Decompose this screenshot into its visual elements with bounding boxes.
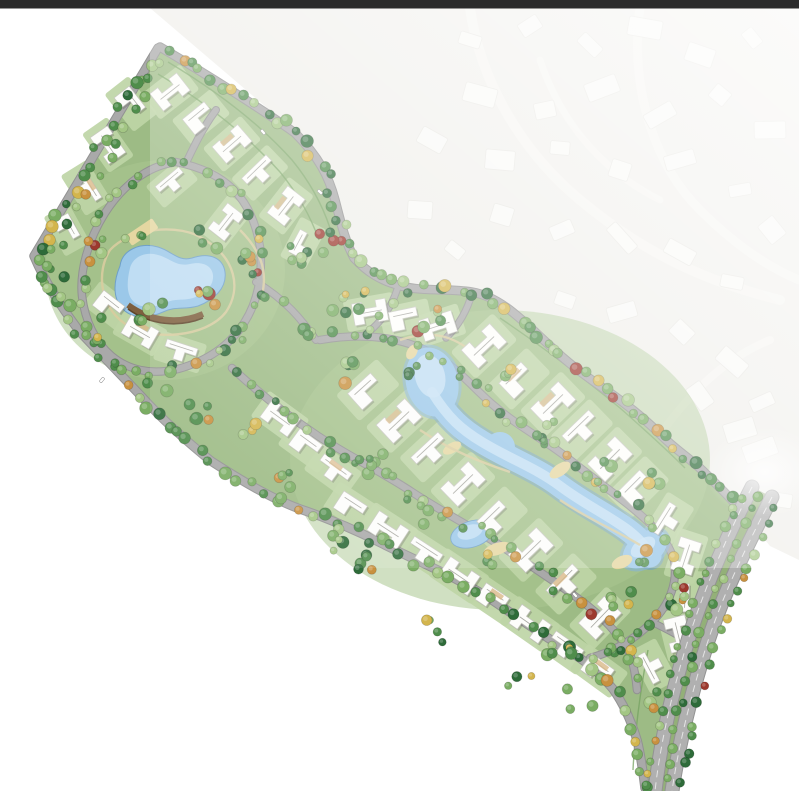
tree-highlight [322,163,327,168]
tree-highlight [60,273,65,278]
tree-highlight [529,673,532,676]
tree-highlight [512,553,517,558]
tree-highlight [424,506,429,511]
tree-highlight [677,779,681,783]
tree-highlight [648,469,652,473]
tree-highlight [180,434,185,439]
tree-highlight [91,144,95,148]
tree-highlight [43,262,48,267]
tree-highlight [356,256,362,262]
ghost-house [484,149,515,171]
tree-highlight [250,271,254,275]
tree-highlight [492,536,495,539]
tree-highlight [626,725,631,730]
tree-highlight [256,236,260,240]
tree-highlight [603,676,608,681]
tree-highlight [635,501,640,506]
tree-highlight [435,306,439,310]
tree-highlight [489,300,494,305]
tree-highlight [479,523,482,526]
tree-highlight [578,599,583,604]
tree-highlight [100,237,103,240]
tree-highlight [409,561,414,566]
tree-highlight [440,281,446,287]
tree-highlight [324,190,328,194]
tree-highlight [627,646,632,651]
tree-highlight [267,111,271,115]
tree-highlight [273,119,278,124]
tree-highlight [703,571,706,574]
tree-highlight [760,534,764,538]
tree-highlight [572,463,576,467]
tree-highlight [672,605,678,611]
tree-highlight [654,426,659,431]
tree-highlight [665,775,668,778]
tree-highlight [657,723,661,727]
tree-highlight [724,616,728,620]
tree-highlight [710,601,714,605]
tree-highlight [36,256,41,261]
tree-highlight [256,391,260,395]
tree-highlight [320,249,325,254]
tree-highlight [635,630,639,634]
tree-highlight [636,559,640,563]
tree-highlight [289,414,294,419]
tree-highlight [405,372,409,376]
tree-highlight [107,195,111,199]
tree-highlight [383,469,388,474]
tree-highlight [232,326,237,331]
tree-highlight [78,301,82,305]
tree-highlight [156,60,160,64]
tree-highlight [71,331,75,335]
tree-highlight [240,91,245,96]
tree-highlight [355,566,359,570]
tree-highlight [653,738,656,741]
tree-highlight [564,595,569,600]
tree-highlight [48,222,54,228]
tree-highlight [137,395,141,399]
tree-highlight [564,685,569,690]
tree-highlight [443,572,449,578]
tree-highlight [221,469,227,475]
tree-highlight [135,173,139,177]
tree-highlight [192,359,197,364]
tree-highlight [633,750,638,755]
tree-highlight [645,771,648,774]
tree-highlight [366,539,370,543]
tree-highlight [66,301,72,307]
tree-highlight [695,628,700,633]
tree-highlight [616,688,621,693]
tree-highlight [362,288,366,292]
tree-highlight [721,576,725,580]
tree-highlight [207,360,210,363]
tree-highlight [689,663,694,668]
tree-highlight [682,759,687,764]
tree-highlight [242,249,247,254]
tree-highlight [420,520,425,525]
tree-highlight [667,761,671,765]
tree-highlight [632,738,636,742]
tree-highlight [583,368,587,372]
tree-highlight [546,341,550,345]
tree-highlight [682,678,686,682]
tree-highlight [39,244,45,250]
tree-highlight [98,314,102,318]
tree-highlight [287,470,290,473]
tree-highlight [86,258,91,263]
tree-highlight [649,525,653,529]
tree-highlight [742,519,747,524]
tree-highlight [661,536,666,541]
tree-highlight [567,649,572,654]
tree-highlight [627,588,632,593]
top-bar [0,0,799,9]
tree-highlight [487,530,492,535]
tree-highlight [712,586,715,589]
tree-highlight [329,532,334,537]
tree-highlight [155,409,160,414]
tree-highlight [564,452,568,456]
tree-highlight [110,122,114,126]
tree-highlight [653,611,657,615]
tree-highlight [526,323,531,328]
tree-highlight [133,78,139,84]
tree-highlight [113,189,117,193]
tree-highlight [536,563,540,567]
tree-highlight [133,106,137,110]
tree-highlight [706,613,709,616]
tree-highlight [248,381,252,385]
tree-highlight [97,249,102,254]
tree-highlight [687,611,691,615]
tree-highlight [186,400,191,405]
tree-highlight [379,534,385,540]
tree-highlight [48,246,52,250]
tree-highlight [228,187,233,192]
tree-highlight [609,394,613,398]
tree-highlight [706,661,710,665]
tree-highlight [419,497,424,502]
tree-highlight [219,85,224,90]
tree-highlight [605,649,609,653]
tree-highlight [550,588,554,592]
tree-highlight [754,493,759,498]
tree-highlight [331,548,334,551]
tree-highlight [83,323,88,328]
tree-highlight [96,211,100,215]
tree-highlight [63,220,68,225]
tree-highlight [549,642,553,646]
tree-highlight [204,288,209,293]
tree-highlight [142,403,148,409]
tree-highlight [589,702,594,707]
tree-highlight [444,508,449,513]
tree-highlight [289,257,293,261]
tree-highlight [346,240,350,244]
tree-highlight [440,639,443,642]
tree-highlight [61,242,65,246]
tree-highlight [742,565,747,570]
tree-highlight [189,59,193,63]
tree-highlight [434,629,438,633]
tree-highlight [771,505,775,509]
tree-highlight [293,128,297,132]
tree-highlight [709,644,714,649]
tree-highlight [349,358,354,363]
tree-highlight [517,418,522,423]
tree-highlight [141,93,146,98]
tree-highlight [646,621,651,626]
tree-highlight [181,159,185,163]
tree-highlight [378,271,383,276]
tree-highlight [750,506,753,509]
tree-highlight [343,221,347,225]
tree-highlight [260,491,264,495]
tree-highlight [719,627,723,631]
tree-highlight [146,373,150,377]
tree-highlight [693,642,696,645]
tree-highlight [650,705,654,709]
tree-highlight [567,706,571,710]
tree-highlight [648,759,651,762]
tree-highlight [473,380,478,385]
tree-highlight [95,355,99,359]
tree-highlight [74,204,78,208]
tree-highlight [367,327,371,331]
tree-highlight [713,540,717,544]
tree-highlight [457,374,460,377]
tree-highlight [103,136,108,141]
tree-highlight [667,601,672,606]
tree-highlight [624,395,630,401]
tree-highlight [729,493,734,498]
tree-highlight [551,438,556,443]
tree-highlight [229,337,233,341]
tree-highlight [437,317,442,322]
tree-highlight [355,523,360,528]
tree-highlight [751,551,756,556]
tree-highlight [544,422,548,426]
tree-highlight [503,419,507,423]
tree-highlight [510,610,515,615]
tree-highlight [277,494,282,499]
tree-highlight [213,244,218,249]
tree-highlight [249,479,253,483]
tree-highlight [252,419,257,424]
tree-highlight [460,525,464,529]
tree-highlight [670,553,675,558]
tree-highlight [646,516,650,520]
tree-highlight [766,521,770,525]
tree-highlight [554,349,559,354]
tree-highlight [166,367,171,372]
tree-highlight [405,497,408,500]
tree-highlight [333,217,337,221]
tree-highlight [642,546,648,552]
tree-highlight [158,158,162,162]
tree-highlight [95,334,99,338]
tree-highlight [624,656,629,661]
tree-highlight [244,210,249,215]
tree-highlight [507,365,512,370]
tree-highlight [139,317,143,321]
tree-highlight [614,630,619,635]
tree-highlight [615,492,618,495]
tree-highlight [329,328,334,333]
tree-highlight [689,653,693,657]
tree-highlight [681,593,685,597]
ghost-house [407,200,433,220]
tree-highlight [655,479,660,484]
tree-highlight [371,269,375,273]
tree-highlight [80,171,85,176]
tree-highlight [496,409,501,414]
tree-highlight [399,277,404,282]
tree-highlight [240,337,243,340]
tree-highlight [376,313,380,317]
tree-highlight [343,292,346,295]
tree-highlight [634,659,639,664]
tree-highlight [63,201,67,205]
tree-highlight [423,616,428,621]
tree-highlight [205,416,209,420]
tree-highlight [728,601,731,604]
tree-highlight [298,254,303,259]
tree-highlight [421,281,425,285]
screenshot-root [0,0,799,791]
tree-highlight [57,293,61,297]
tree-highlight [335,525,340,530]
tree-highlight [119,124,124,129]
tree-highlight [145,75,149,79]
tree-highlight [483,400,486,403]
tree-highlight [434,569,439,574]
tree-highlight [686,750,690,754]
tree-highlight [741,575,744,578]
tree-highlight [124,92,129,97]
tree-highlight [327,203,332,208]
tree-highlight [148,61,153,66]
tree-highlight [326,438,331,443]
tree-highlight [635,675,639,679]
tree-highlight [549,649,554,654]
tree-highlight [472,589,476,593]
tree-highlight [355,305,360,310]
tree-highlight [232,477,237,482]
tree-highlight [419,323,424,328]
tree-highlight [587,665,593,671]
tree-highlight [731,512,735,516]
tree-highlight [601,486,605,490]
tree-highlight [388,275,393,280]
tree-highlight [608,596,612,600]
tree-highlight [352,333,356,337]
tree-highlight [733,541,737,545]
tree-highlight [280,298,284,302]
tree-highlight [439,513,443,517]
tree-highlight [415,342,419,346]
tree-highlight [316,230,321,235]
ghost-house [550,140,571,155]
tree-highlight [227,85,232,90]
tree-highlight [521,319,527,325]
tree-highlight [282,116,287,121]
tree-highlight [639,415,644,420]
tree-highlight [162,386,168,392]
tree-highlight [699,472,703,476]
tree-highlight [706,558,710,562]
tree-highlight [672,707,677,712]
tree-highlight [587,610,592,615]
tree-highlight [65,316,69,320]
tree-highlight [381,335,385,339]
tree-highlight [621,707,626,712]
tree-highlight [336,537,339,540]
tree-highlight [304,331,309,336]
tree-highlight [590,656,594,660]
tree-highlight [85,238,89,242]
tree-highlight [692,458,698,464]
tree-highlight [199,446,204,451]
tree-highlight [217,180,221,184]
tree-highlight [44,284,49,289]
tree-highlight [369,566,373,570]
tree-highlight [630,410,634,414]
tree-highlight [259,249,264,254]
tree-highlight [342,308,347,313]
tree-highlight [112,360,116,364]
tree-highlight [262,294,266,298]
tree-highlight [356,456,360,460]
tree-highlight [239,190,243,194]
tree-highlight [619,637,622,640]
tree-highlight [240,431,245,436]
tree-highlight [233,368,237,372]
tree-highlight [114,103,118,107]
tree-highlight [273,398,276,401]
tree-highlight [257,228,262,233]
tree-highlight [673,583,677,587]
tree-highlight [251,99,255,103]
tree-highlight [670,726,674,730]
tree-highlight [604,385,609,390]
tree-highlight [166,47,170,51]
tree-highlight [129,181,133,185]
tree-highlight [204,169,209,174]
tree-highlight [601,458,605,462]
tree-highlight [144,304,150,310]
tree-highlight [730,505,734,509]
tree-highlight [646,698,652,704]
tree-highlight [459,582,464,587]
tree-highlight [205,403,209,407]
tree-highlight [217,348,220,351]
tree-highlight [159,299,164,304]
tree-highlight [426,353,430,357]
tree-highlight [629,637,632,640]
tree-highlight [363,553,367,557]
tree-highlight [636,768,640,772]
tree-highlight [532,333,538,339]
tree-highlight [349,250,353,254]
tree-highlight [98,173,101,176]
tree-highlight [618,647,622,651]
tree-highlight [606,617,611,622]
tree-highlight [303,136,309,142]
tree-highlight [82,277,87,282]
